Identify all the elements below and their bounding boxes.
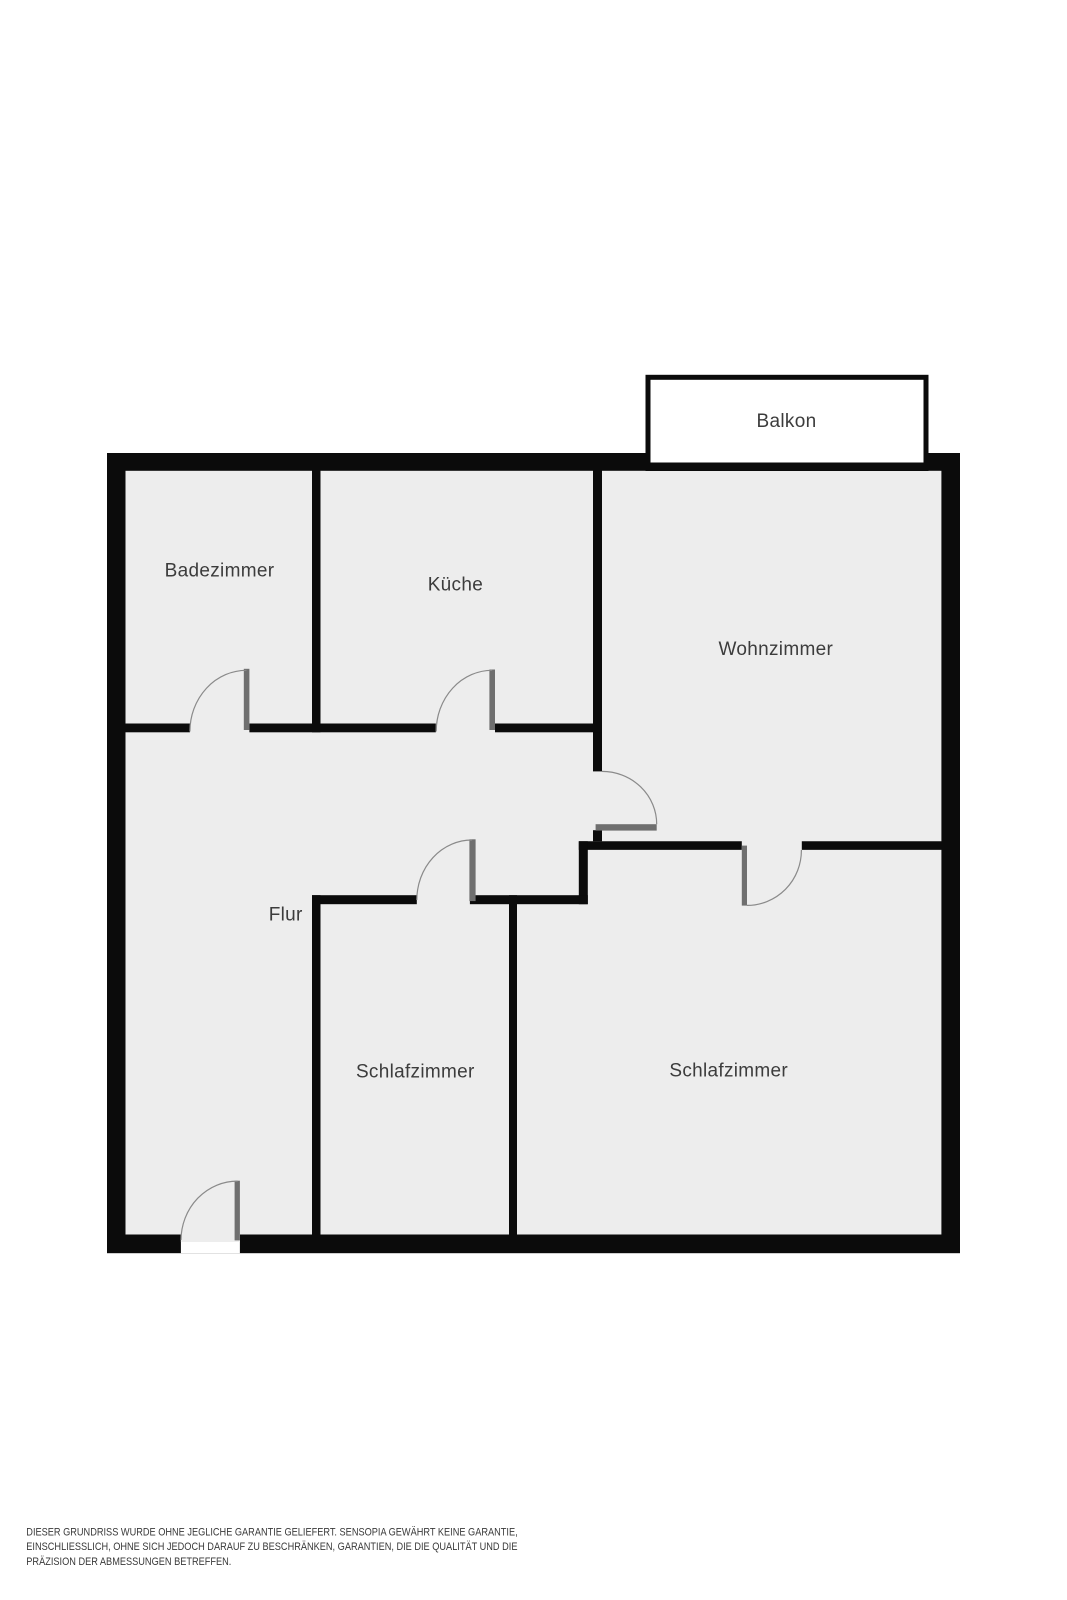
svg-text:PRÄZISION DER ABMESSUNGEN BETR: PRÄZISION DER ABMESSUNGEN BETREFFEN.: [26, 1555, 231, 1568]
svg-text:DIESER GRUNDRISS WURDE OHNE JE: DIESER GRUNDRISS WURDE OHNE JEGLICHE GAR…: [26, 1526, 517, 1539]
svg-text:Schlafzimmer: Schlafzimmer: [356, 1062, 475, 1083]
svg-text:Küche: Küche: [428, 575, 483, 596]
svg-text:Flur: Flur: [269, 905, 303, 926]
svg-text:Wohnzimmer: Wohnzimmer: [719, 639, 834, 660]
svg-text:EINSCHLIESSLICH, OHNE SICH JED: EINSCHLIESSLICH, OHNE SICH JEDOCH DARAUF…: [26, 1540, 517, 1553]
svg-text:Badezimmer: Badezimmer: [165, 561, 275, 582]
svg-text:Schlafzimmer: Schlafzimmer: [669, 1061, 788, 1082]
svg-text:Balkon: Balkon: [757, 411, 817, 432]
